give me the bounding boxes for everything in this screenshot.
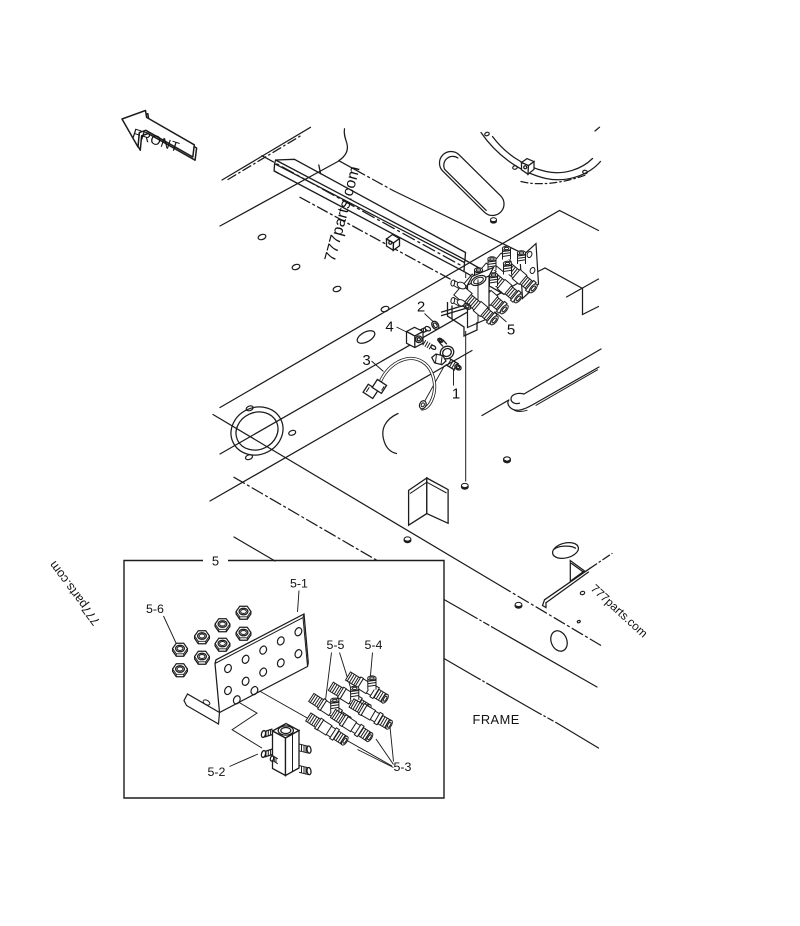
svg-text:5-3: 5-3	[394, 760, 412, 774]
svg-text:1: 1	[452, 386, 460, 403]
svg-text:5: 5	[212, 554, 219, 569]
svg-text:FRAME: FRAME	[473, 712, 520, 727]
svg-text:4: 4	[385, 319, 393, 336]
svg-text:5-5: 5-5	[327, 638, 345, 652]
svg-text:5-1: 5-1	[290, 577, 308, 591]
svg-text:3: 3	[362, 352, 370, 369]
svg-text:5-6: 5-6	[146, 602, 164, 616]
svg-text:5-4: 5-4	[365, 638, 383, 652]
svg-text:5: 5	[507, 322, 515, 339]
svg-text:5-2: 5-2	[208, 765, 226, 779]
svg-text:2: 2	[417, 299, 425, 316]
